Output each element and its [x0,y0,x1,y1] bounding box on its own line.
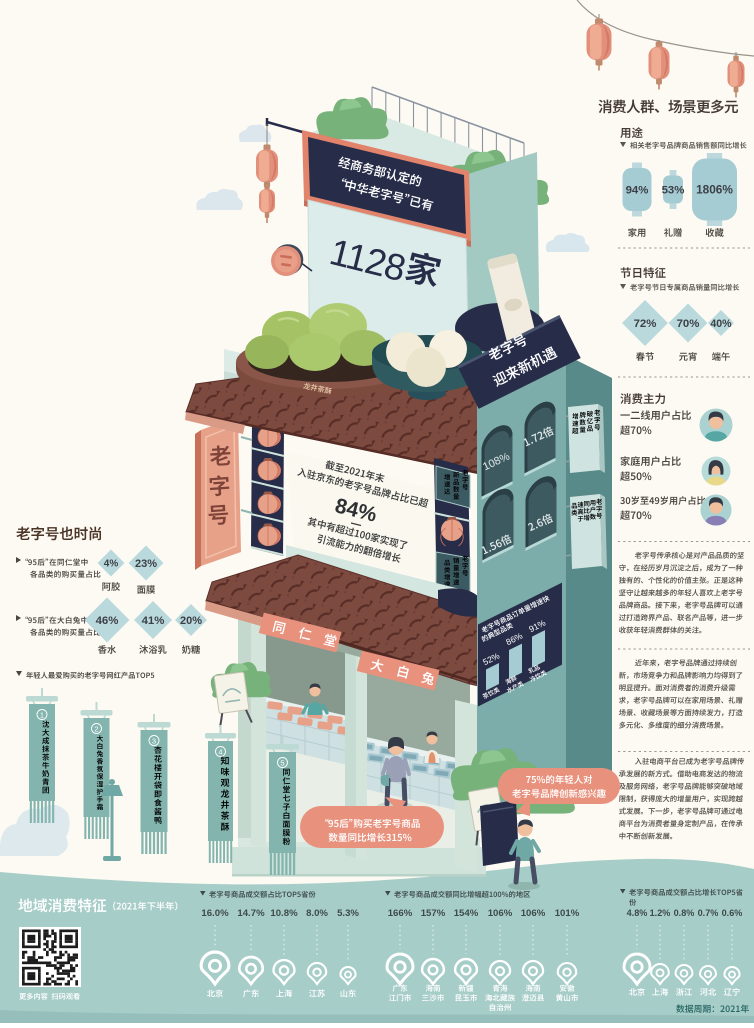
svg-text:1: 1 [40,711,44,720]
svg-text:20%: 20% [180,615,202,627]
svg-text:1806%: 1806% [696,183,733,197]
svg-text:2: 2 [94,725,98,734]
svg-text:4: 4 [218,748,222,757]
svg-text:70%: 70% [677,318,700,330]
svg-text:166%: 166% [388,908,413,919]
svg-text:41%: 41% [142,615,165,627]
svg-text:5.3%: 5.3% [337,908,359,919]
svg-text:72%: 72% [634,318,657,330]
svg-text:106%: 106% [488,908,513,919]
svg-text:106%: 106% [521,908,546,919]
svg-text:0.8%: 0.8% [674,908,695,918]
svg-text:14.7%: 14.7% [237,908,265,919]
svg-text:154%: 154% [454,908,479,919]
svg-text:5: 5 [280,759,284,768]
svg-text:3: 3 [152,737,156,746]
svg-text:10.8%: 10.8% [270,908,298,919]
svg-text:40%: 40% [710,318,732,330]
svg-text:8.0%: 8.0% [306,908,328,919]
svg-text:1.2%: 1.2% [650,908,671,918]
svg-text:4.8%: 4.8% [627,908,648,918]
svg-text:94%: 94% [626,185,649,197]
svg-text:46%: 46% [96,615,119,627]
svg-text:53%: 53% [662,185,685,197]
svg-text:16.0%: 16.0% [201,908,229,919]
svg-text:0.6%: 0.6% [722,908,743,918]
svg-text:4%: 4% [104,559,119,570]
svg-text:0.7%: 0.7% [698,908,719,918]
svg-text:157%: 157% [421,908,446,919]
svg-text:101%: 101% [555,908,580,919]
svg-text:23%: 23% [135,558,157,570]
